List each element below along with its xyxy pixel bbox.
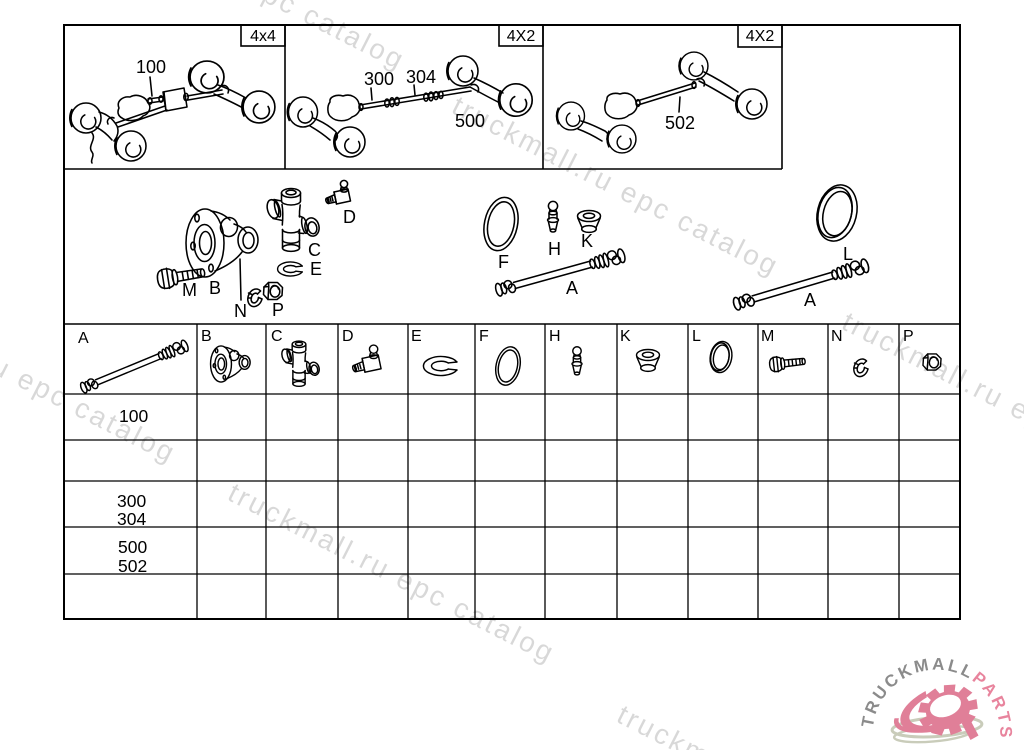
svg-text:502: 502 <box>118 556 147 576</box>
svg-text:4x4: 4x4 <box>250 28 276 45</box>
svg-text:4X2: 4X2 <box>746 28 775 45</box>
svg-text:B: B <box>209 278 221 298</box>
svg-text:E: E <box>310 259 322 279</box>
svg-text:A: A <box>78 330 89 347</box>
svg-text:L: L <box>692 328 701 345</box>
svg-text:300: 300 <box>117 491 146 511</box>
svg-text:A: A <box>804 290 816 310</box>
svg-text:truckmall.ru epc catalog: truckmall.ru epc catalog <box>837 306 1024 498</box>
svg-text:M: M <box>182 280 197 300</box>
svg-text:H: H <box>548 239 561 259</box>
svg-text:500: 500 <box>455 111 485 131</box>
svg-text:P: P <box>272 300 284 320</box>
svg-text:500: 500 <box>118 537 147 557</box>
svg-text:C: C <box>308 240 321 260</box>
svg-text:B: B <box>201 328 212 345</box>
svg-text:N: N <box>234 301 247 321</box>
svg-text:100: 100 <box>119 406 148 426</box>
svg-text:M: M <box>761 328 774 345</box>
svg-text:502: 502 <box>665 113 695 133</box>
svg-text:E: E <box>411 328 422 345</box>
svg-text:C: C <box>271 328 283 345</box>
svg-text:A: A <box>566 278 578 298</box>
svg-text:4X2: 4X2 <box>507 28 536 45</box>
svg-text:100: 100 <box>136 57 166 77</box>
svg-text:D: D <box>342 328 354 345</box>
svg-text:K: K <box>581 231 593 251</box>
svg-text:P: P <box>903 328 914 345</box>
svg-text:D: D <box>343 207 356 227</box>
svg-text:300: 300 <box>364 69 394 89</box>
svg-text:truckmall.ru epc catalog: truckmall.ru epc catalog <box>73 0 410 76</box>
svg-text:F: F <box>479 328 489 345</box>
svg-text:L: L <box>843 244 853 264</box>
svg-text:truckmall.ru epc catalog: truckmall.ru epc catalog <box>223 477 560 669</box>
svg-text:N: N <box>831 328 843 345</box>
svg-text:K: K <box>620 328 631 345</box>
svg-text:H: H <box>549 328 561 345</box>
svg-text:304: 304 <box>117 509 146 529</box>
svg-text:F: F <box>498 252 509 272</box>
svg-text:304: 304 <box>406 67 436 87</box>
